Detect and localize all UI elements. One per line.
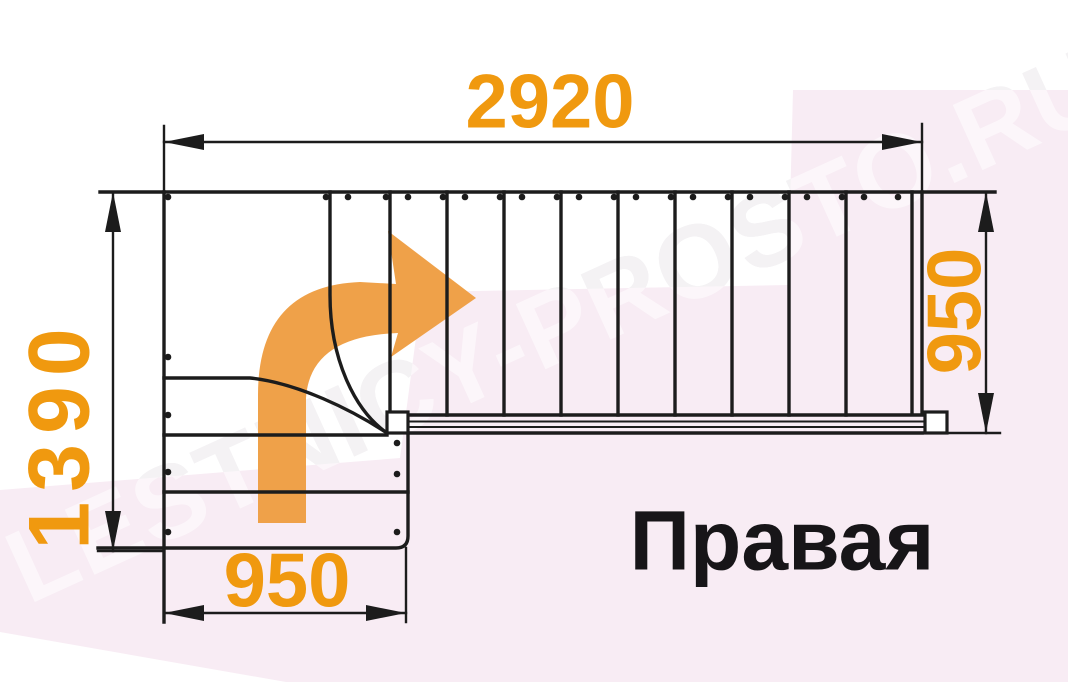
right-newel-post [925,412,947,433]
backdrop-white-corner [0,632,286,682]
dimension-label-right: 950 [912,248,999,375]
dimension-label-bottom: 950 [224,538,351,625]
dimension-label-top: 2920 [465,59,634,146]
orientation-title: Правая [630,493,935,590]
dimension-label-left: 1390 [11,318,110,549]
